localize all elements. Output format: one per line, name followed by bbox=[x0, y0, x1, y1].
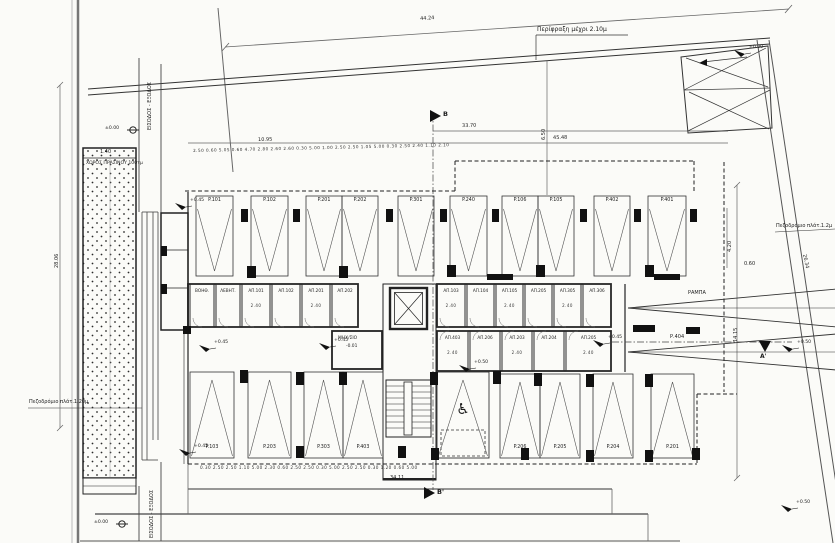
pillar bbox=[634, 209, 641, 222]
parking-stall bbox=[196, 196, 233, 276]
plan-linework bbox=[0, 0, 835, 543]
ramp-label: ΡΑΜΠΑ bbox=[688, 291, 706, 296]
parking-stall bbox=[538, 196, 574, 276]
pillar bbox=[430, 372, 438, 385]
section-label-b: B bbox=[443, 111, 448, 118]
stall-hatch bbox=[667, 209, 685, 271]
stall-hatch bbox=[215, 209, 232, 271]
green-area-label: ΧΩΡΟΣ ΠΡΑΣΙΝΟΥ 100τμ bbox=[86, 162, 143, 167]
stall-hatch bbox=[360, 209, 377, 271]
pillar bbox=[645, 265, 654, 277]
pillar bbox=[447, 265, 456, 277]
pillar bbox=[534, 373, 542, 386]
room-dim: 2.40 bbox=[446, 304, 457, 308]
dimension-text: 33.70 bbox=[462, 124, 476, 129]
entry-bottom-label: ΕΙΣΟΔΟΣ - ΕΞΟΔΟΣ bbox=[150, 490, 155, 538]
room-label: ΑΠ.103 bbox=[443, 289, 458, 293]
stall-label: P.301 bbox=[410, 199, 423, 204]
stall-label: P.101 bbox=[208, 199, 221, 204]
benchmark-label: ±0.00 bbox=[105, 127, 119, 132]
door-arc bbox=[557, 318, 566, 327]
stall-hatch bbox=[540, 209, 557, 271]
sidewalk-right-label: Πεζοδρόμιο πλάτ.1.2μ bbox=[776, 224, 832, 229]
room-label: ΑΠ.104 bbox=[473, 289, 488, 293]
stall-hatch bbox=[612, 209, 629, 271]
stair-stringer bbox=[404, 382, 412, 435]
pillar bbox=[536, 265, 545, 277]
dimension-text: 45.48 bbox=[553, 136, 567, 141]
overall-dimension-line bbox=[225, 9, 789, 47]
level-flag-icon bbox=[593, 340, 604, 347]
level-label: +0.45 bbox=[194, 445, 208, 450]
pillar bbox=[240, 370, 248, 383]
pillar bbox=[296, 446, 304, 458]
door-arc bbox=[470, 318, 479, 327]
pillar bbox=[645, 450, 653, 462]
door-arc bbox=[586, 318, 595, 327]
storage-band-top-right bbox=[437, 284, 611, 327]
pillar bbox=[431, 448, 439, 460]
stall-hatch bbox=[344, 209, 361, 271]
machine-room-level: -0.01 bbox=[346, 345, 357, 349]
aisle-label: Ρ.404 bbox=[670, 335, 684, 340]
door-arc bbox=[499, 318, 508, 327]
pillar bbox=[487, 274, 513, 280]
level-flag-pole bbox=[792, 508, 798, 509]
pillar bbox=[293, 209, 300, 222]
stall-label: P.106 bbox=[514, 199, 527, 204]
pillar bbox=[241, 209, 248, 222]
pillar bbox=[645, 374, 653, 387]
door-arc bbox=[528, 318, 537, 327]
stall-hatch bbox=[416, 209, 433, 271]
parking-stall bbox=[648, 196, 686, 276]
pillar bbox=[183, 326, 191, 334]
stall-hatch bbox=[439, 380, 464, 456]
level-flag-icon bbox=[734, 50, 745, 57]
stall-hatch bbox=[253, 209, 270, 271]
stall-hatch bbox=[308, 209, 325, 271]
level-flag-icon bbox=[781, 505, 792, 512]
room-label: ΑΠ.204 bbox=[541, 336, 556, 340]
stall-hatch bbox=[270, 209, 287, 271]
room-label: ΒΟΗΘ. bbox=[195, 289, 209, 293]
level-flag-pole bbox=[793, 348, 799, 349]
stall-hatch bbox=[452, 209, 469, 271]
stall-label: P.240 bbox=[462, 199, 475, 204]
sidewalk-left-label: Πεζοδρόμιο πλάτ.1.20μ bbox=[29, 400, 88, 405]
level-flag-pole bbox=[330, 346, 336, 347]
fence-line-2 bbox=[88, 44, 770, 95]
door-arc bbox=[335, 318, 344, 327]
pillar bbox=[247, 266, 256, 278]
room-label: ΑΠ.203 bbox=[509, 336, 524, 340]
section-marker-b bbox=[430, 110, 441, 122]
room-label: ΑΠ.202 bbox=[337, 289, 352, 293]
green-strip bbox=[83, 148, 136, 494]
door-arc bbox=[245, 318, 254, 327]
stall-hatch bbox=[198, 209, 215, 271]
level-label: +0.50 bbox=[474, 361, 488, 366]
ramp-arrow bbox=[699, 59, 707, 66]
room-label: ΑΠ.201 bbox=[308, 289, 323, 293]
level-flag-icon bbox=[782, 345, 793, 352]
level-label: +0.45 bbox=[608, 336, 622, 341]
parking-stall bbox=[251, 196, 288, 276]
room-dim: 2.40 bbox=[562, 304, 573, 308]
pillar bbox=[339, 266, 348, 278]
stall-label: P.402 bbox=[606, 199, 619, 204]
parking-stall bbox=[306, 196, 342, 276]
stall-hatch bbox=[596, 209, 613, 271]
retaining-wall bbox=[142, 212, 158, 460]
stall-hatch bbox=[650, 209, 668, 271]
stall-label: P.205 bbox=[554, 446, 567, 451]
room-label: ΑΠ.205 bbox=[531, 289, 546, 293]
pillar bbox=[161, 284, 167, 294]
room-dim: 2.40 bbox=[504, 304, 515, 308]
dimension-text: 0.30 2.50 2.50 1.10 5.00 2.30 0.60 2.50 … bbox=[200, 466, 418, 470]
room-label: ΑΠ.102 bbox=[278, 289, 293, 293]
accessible-stall-dashed bbox=[441, 430, 485, 456]
pillar bbox=[493, 371, 501, 384]
level-flag-pole bbox=[210, 348, 216, 349]
parking-stall bbox=[398, 196, 434, 276]
room-label: ΛΕΒΗΤ. bbox=[220, 289, 235, 293]
pillar bbox=[692, 448, 700, 460]
pillar bbox=[633, 325, 655, 332]
parking-stall bbox=[450, 196, 487, 276]
stall-hatch bbox=[504, 209, 521, 271]
parking-stall bbox=[502, 196, 538, 276]
east-boundary-1 bbox=[757, 40, 833, 543]
room-dim: 2.40 bbox=[583, 351, 594, 355]
door-arc bbox=[219, 318, 228, 327]
stall-label: P.102 bbox=[263, 199, 276, 204]
stall-label: P.403 bbox=[357, 446, 370, 451]
pillar bbox=[296, 372, 304, 385]
stall-label: P.201 bbox=[666, 446, 679, 451]
dimension-text: 0.60 bbox=[744, 262, 755, 267]
stall-hatch bbox=[400, 209, 417, 271]
vestibule bbox=[161, 213, 188, 330]
dashed-boundaries bbox=[185, 161, 737, 464]
level-label: +0.45 bbox=[214, 341, 228, 346]
stall-label: P.204 bbox=[607, 446, 620, 451]
pillar bbox=[161, 246, 167, 256]
stall-label: P.201 bbox=[318, 199, 331, 204]
entry-top-label: ΕΙΣΟΔΟΣ - ΕΞΟΔΟΣ bbox=[148, 82, 153, 130]
room-label: ΑΠ.403 bbox=[445, 336, 460, 340]
room-dim: 2.40 bbox=[512, 351, 523, 355]
room-label: ΑΠ.305 bbox=[560, 289, 575, 293]
pillar bbox=[686, 327, 700, 334]
section-label-b2: B' bbox=[437, 489, 444, 496]
room-label: ΑΠ.105 bbox=[502, 289, 517, 293]
pillar bbox=[580, 209, 587, 222]
stall-hatch bbox=[469, 209, 486, 271]
dimension-text: 28.06 bbox=[55, 254, 60, 268]
dimension-text: 44.24 bbox=[420, 16, 435, 22]
stall-hatch bbox=[324, 209, 341, 271]
dimension-text: 1.40 bbox=[100, 150, 111, 155]
room-label: ΑΠ.206 bbox=[477, 336, 492, 340]
sidewalk-right-underline bbox=[775, 229, 835, 232]
core bbox=[383, 284, 436, 480]
stall-label: P.105 bbox=[550, 199, 563, 204]
pillar bbox=[339, 372, 347, 385]
pillar bbox=[398, 446, 406, 458]
level-flag-pole bbox=[470, 368, 476, 369]
room-label: ΑΠ.205 bbox=[581, 336, 596, 340]
pillar bbox=[586, 450, 594, 462]
level-flag-pole bbox=[604, 343, 610, 344]
stall-label: P.202 bbox=[354, 199, 367, 204]
room-label: ΑΠ.101 bbox=[248, 289, 263, 293]
pillar bbox=[690, 209, 697, 222]
room-dim: 2.40 bbox=[447, 351, 458, 355]
level-label: +0.45 bbox=[334, 339, 348, 344]
dimension-text: 4.20 bbox=[728, 241, 733, 252]
floor-plan-drawing: Περίφραξη μέχρι 2.10μ Πεζοδρόμιο πλάτ.1.… bbox=[0, 0, 835, 543]
door-arc bbox=[193, 318, 202, 327]
stall-hatch bbox=[520, 209, 537, 271]
benchmark-label: ±0.00 bbox=[94, 521, 108, 526]
parking-stall bbox=[594, 196, 630, 276]
dimension-text: 34.11 bbox=[390, 476, 404, 481]
section-marker-a2 bbox=[759, 341, 771, 352]
pillar bbox=[492, 209, 499, 222]
dimension-text: 14.15 bbox=[734, 328, 739, 342]
stall-hatch bbox=[556, 209, 573, 271]
section-label-a2: A' bbox=[760, 354, 766, 360]
pillar bbox=[654, 274, 680, 280]
level-flag-pole bbox=[186, 206, 192, 207]
room-label: ΑΠ.306 bbox=[589, 289, 604, 293]
door-arc bbox=[569, 331, 578, 340]
stall-label: P.303 bbox=[317, 446, 330, 451]
level-label: +0.50 bbox=[797, 341, 811, 346]
fence-label: Περίφραξη μέχρι 2.10μ bbox=[537, 27, 607, 33]
dynamic-linework bbox=[161, 50, 799, 512]
level-label: ±0.00 bbox=[749, 46, 763, 51]
parking-stall bbox=[342, 196, 378, 276]
level-flag-icon bbox=[199, 345, 210, 352]
level-flag-pole bbox=[190, 452, 196, 453]
level-flag-icon bbox=[319, 343, 330, 350]
door-arc bbox=[305, 318, 314, 327]
dimension-text: 10.95 bbox=[258, 138, 272, 143]
door-arc bbox=[440, 318, 449, 327]
east-boundary-2 bbox=[769, 40, 835, 543]
room-dim: 2.40 bbox=[311, 304, 322, 308]
stall-label: P.206 bbox=[514, 446, 527, 451]
fence-line-1 bbox=[88, 38, 770, 89]
entrance-ramp-topright bbox=[681, 46, 772, 133]
level-label: +0.45 bbox=[190, 199, 204, 204]
wheelchair-icon: ♿ bbox=[456, 402, 469, 417]
level-flag-icon bbox=[175, 203, 186, 210]
stall-hatch bbox=[463, 380, 488, 456]
pillar bbox=[386, 209, 393, 222]
ramps-right bbox=[628, 288, 835, 371]
dimension-text: 6.50 bbox=[542, 129, 547, 140]
stall-label: P.401 bbox=[661, 199, 674, 204]
pillar bbox=[440, 209, 447, 222]
level-label: +0.50 bbox=[796, 501, 810, 506]
door-arc bbox=[275, 318, 284, 327]
stall-label: P.203 bbox=[263, 446, 276, 451]
room-dim: 2.40 bbox=[251, 304, 262, 308]
level-flag-pole bbox=[745, 53, 751, 54]
pillar bbox=[586, 374, 594, 387]
